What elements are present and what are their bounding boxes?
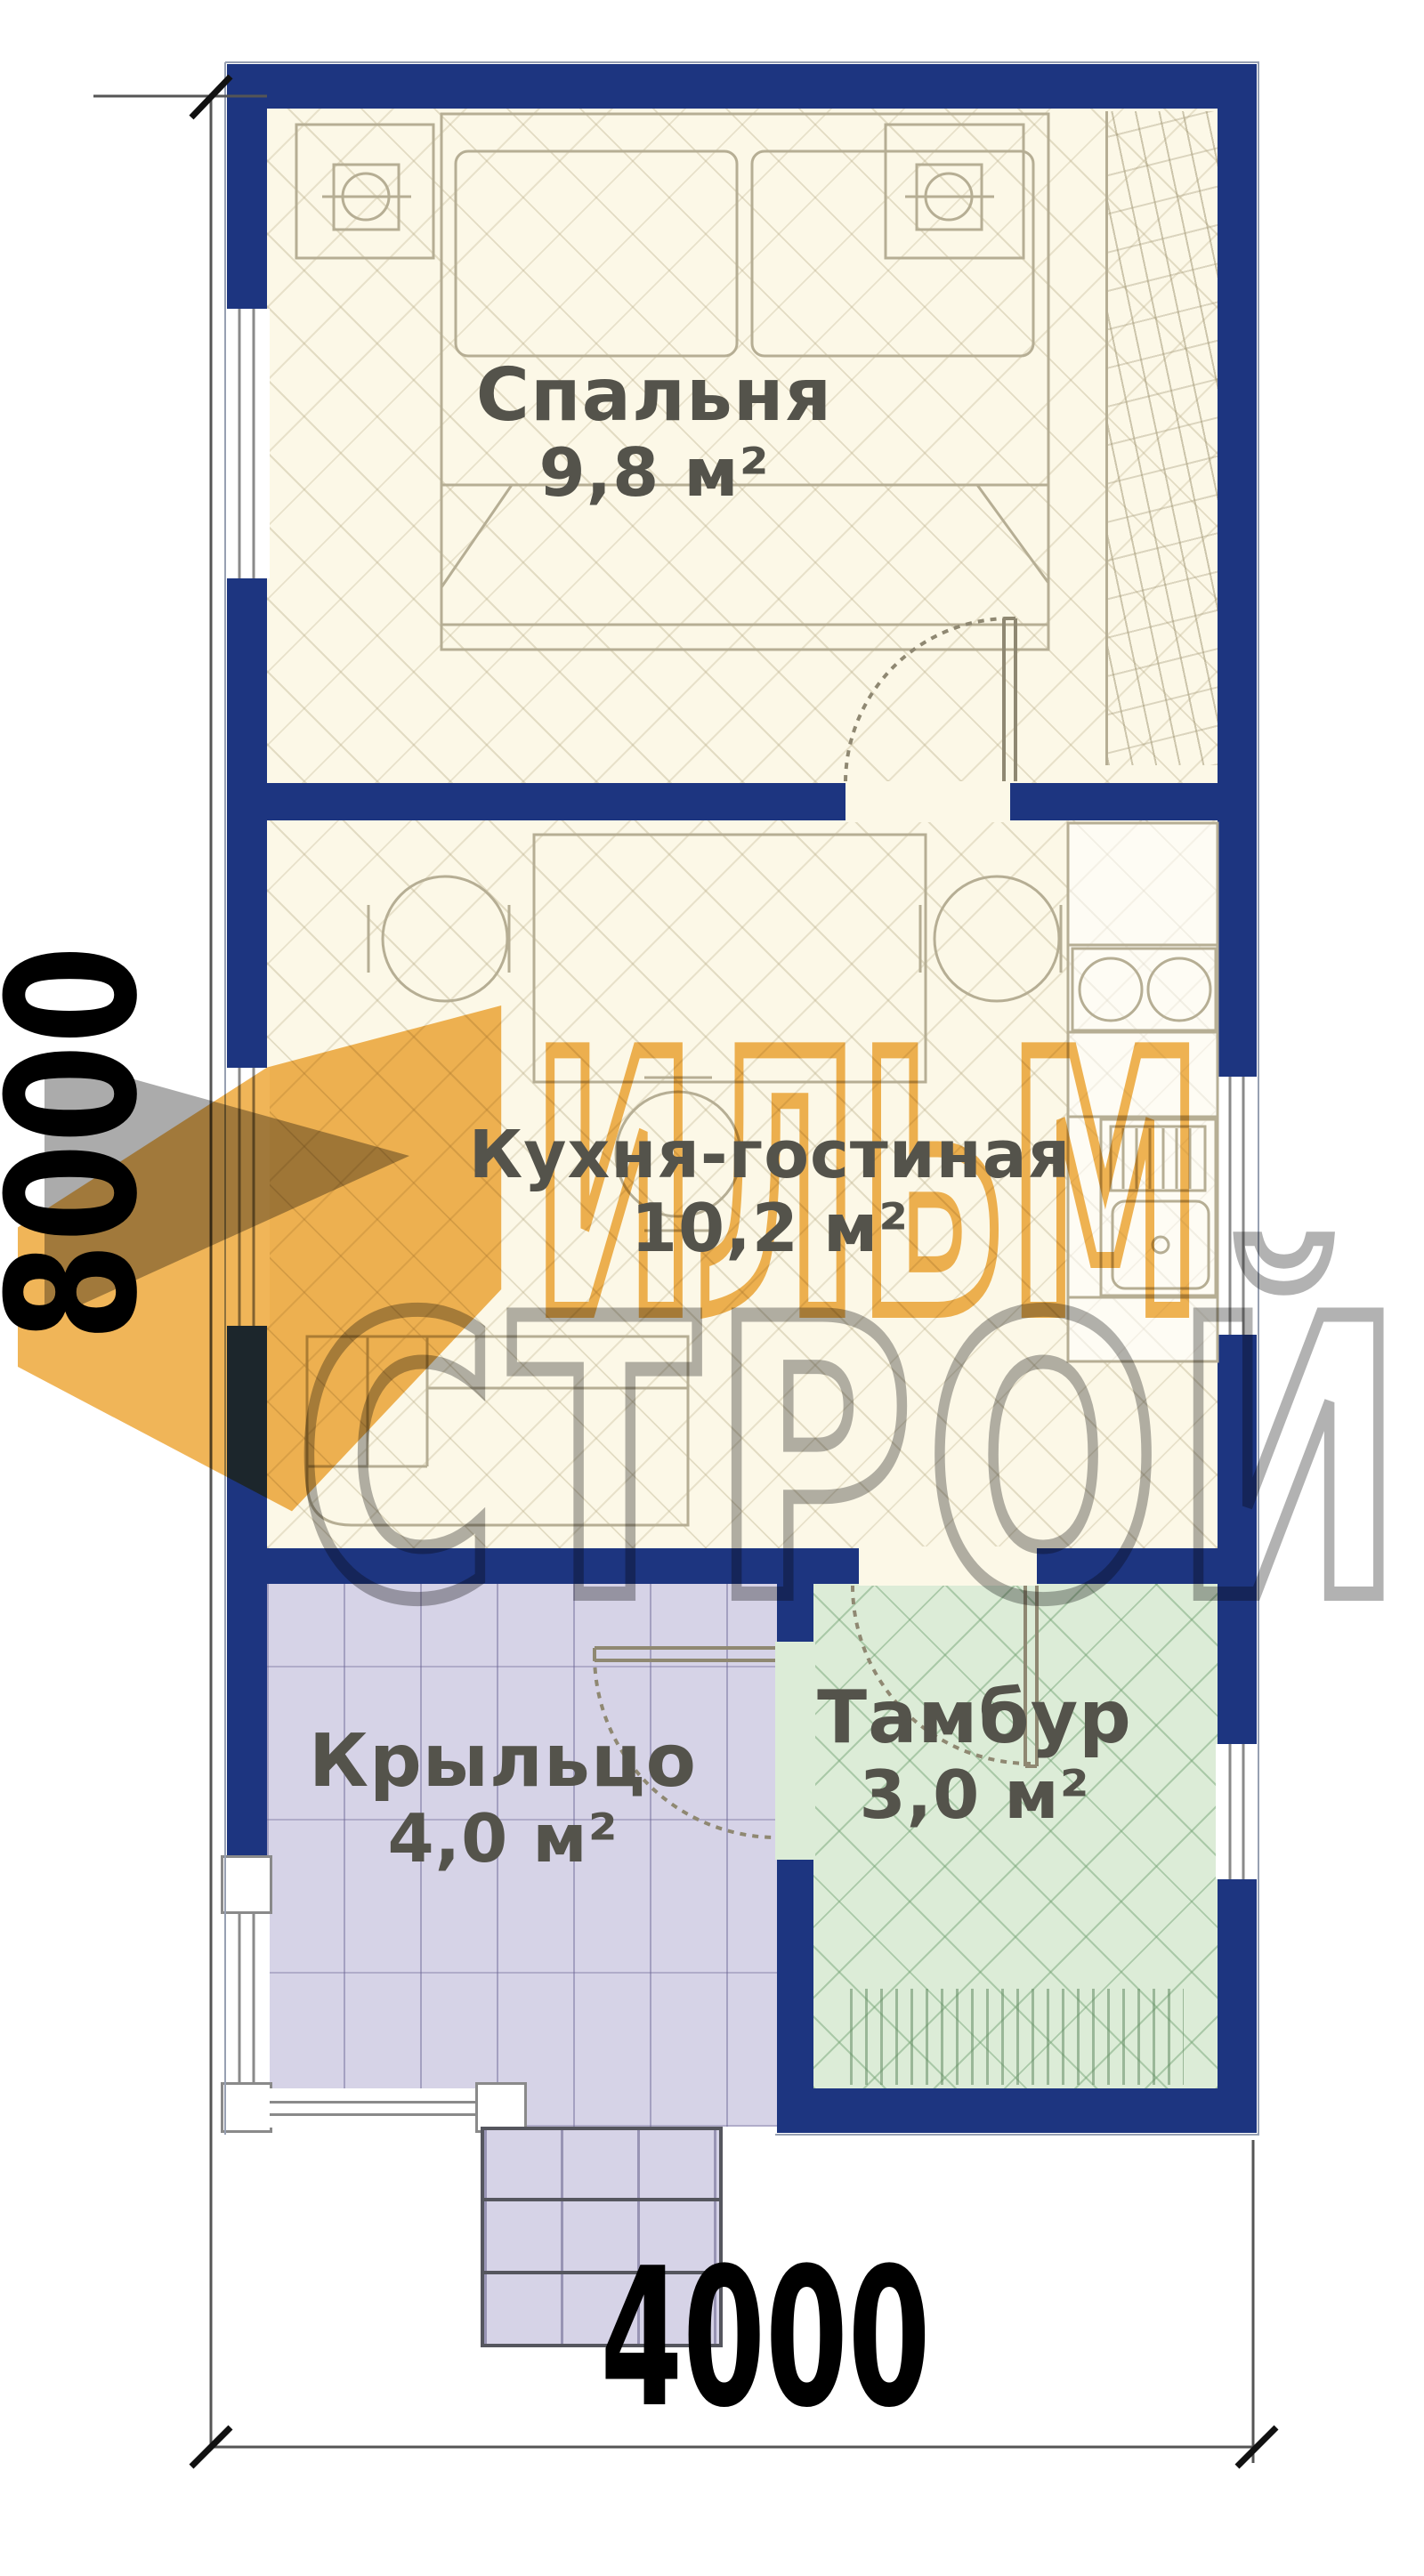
bed-pillow-left bbox=[456, 151, 737, 356]
page: { "rooms": [ {"id": "bedroom", "name": "… bbox=[0, 0, 1424, 2576]
room-name-kitchen-living: Кухня-гостиная bbox=[458, 1119, 1081, 1191]
chair-left-seat bbox=[383, 876, 507, 1001]
room-label-porch: Крыльцо 4,0 м² bbox=[236, 1722, 770, 1876]
room-name-bedroom: Спальня bbox=[387, 356, 921, 436]
bed-pillow-right bbox=[752, 151, 1033, 356]
floor-plan-canvas: ИЛЬМ СТРОЙ Спальня 9,8 м² Кухня-гостиная… bbox=[0, 0, 1424, 2576]
room-name-vestibule: Тамбур bbox=[708, 1678, 1242, 1758]
bed-blanket-fold-right bbox=[977, 485, 1048, 583]
door-bedroom bbox=[845, 618, 1015, 781]
nightstand-left bbox=[296, 125, 433, 258]
nightstand-right bbox=[886, 125, 1023, 258]
room-area-kitchen-living: 10,2 м² bbox=[458, 1191, 1081, 1265]
watermark-word-2: СТРОЙ bbox=[295, 1271, 1417, 1653]
room-label-bedroom: Спальня 9,8 м² bbox=[387, 356, 921, 510]
chair-left-arms bbox=[368, 905, 509, 973]
chair-right-arms bbox=[920, 905, 1061, 973]
room-area-porch: 4,0 м² bbox=[236, 1802, 770, 1876]
room-label-vestibule: Тамбур 3,0 м² bbox=[708, 1678, 1242, 1832]
room-area-vestibule: 3,0 м² bbox=[708, 1758, 1242, 1832]
room-label-kitchen-living: Кухня-гостиная 10,2 м² bbox=[458, 1119, 1081, 1265]
chair-left bbox=[368, 876, 509, 1001]
room-name-porch: Крыльцо bbox=[236, 1722, 770, 1802]
door-bedroom-arc bbox=[845, 618, 1010, 781]
room-area-bedroom: 9,8 м² bbox=[387, 436, 921, 510]
door-bedroom-leaf bbox=[1004, 618, 1015, 781]
dim-height-label: 8000 bbox=[0, 930, 172, 1357]
dim-width-label: 4000 bbox=[597, 2242, 934, 2434]
